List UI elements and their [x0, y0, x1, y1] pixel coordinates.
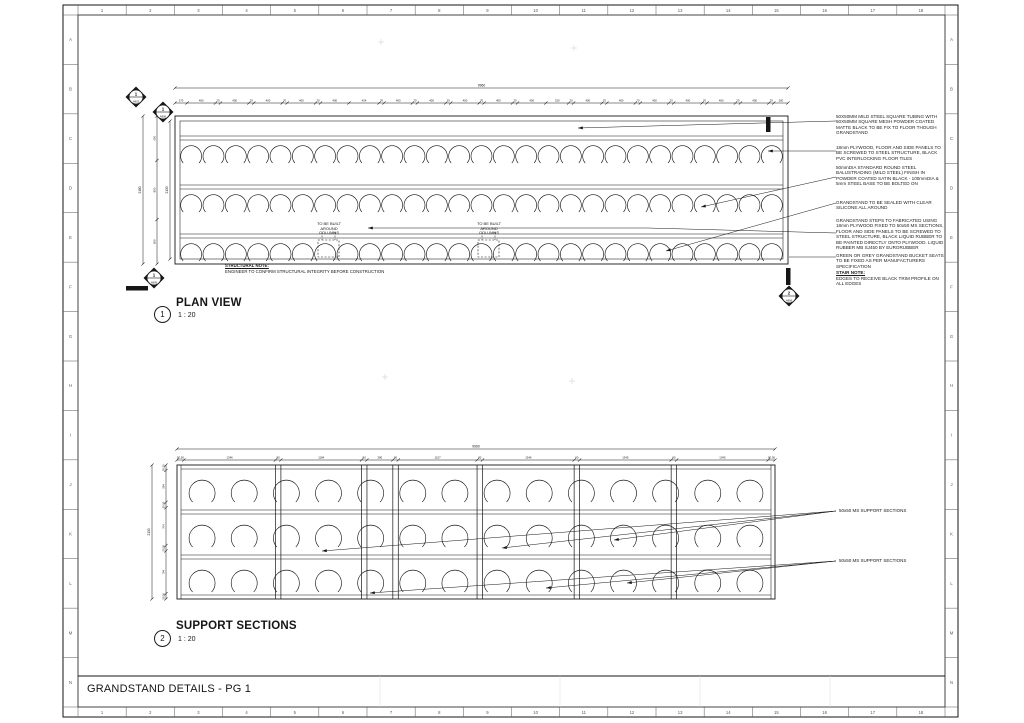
seat-arc [404, 146, 425, 163]
dim-label: 70 [250, 99, 254, 103]
dim-label: 70 [380, 99, 384, 103]
seat-arc [248, 244, 269, 261]
dim-label: 400 [496, 99, 501, 103]
grid-number: 5 [294, 710, 297, 715]
seat-arc [248, 146, 269, 163]
grid-number: 16 [822, 710, 827, 715]
plan-view-title: PLAN VIEW [176, 297, 242, 309]
seat-arc [672, 195, 693, 212]
grid-number: 6 [342, 8, 345, 13]
dim-label: 70 [770, 99, 774, 103]
dim-label: 70 [570, 99, 574, 103]
seat-arc [583, 244, 604, 261]
seat-arc [273, 525, 299, 547]
seat-arc [189, 480, 215, 502]
seat-arc [359, 244, 380, 261]
dim-label: 800 [153, 187, 157, 192]
dim-label: 70 [316, 99, 320, 103]
seat-arc [583, 146, 604, 163]
dim-label: 70 [447, 99, 451, 103]
grid-number: 3 [197, 8, 200, 13]
dim-label: 80 [672, 456, 676, 460]
sheet-border-inner [78, 15, 945, 707]
dim-label: 70 [283, 99, 287, 103]
dim-total-label: 2130 [165, 186, 169, 193]
seat-arc [449, 244, 470, 261]
dim-label: 400 [686, 99, 691, 103]
seat-arc [203, 195, 224, 212]
dim-label: 50,50 [162, 593, 166, 600]
grid-number: 5 [294, 8, 297, 13]
dim-label: 50,50 [162, 544, 166, 551]
seat-arc [695, 525, 721, 547]
seat-arc [203, 146, 224, 163]
dim-label: 424 [362, 99, 367, 103]
seat-arc [717, 244, 738, 261]
seat-arc [560, 146, 581, 163]
seat-arc [653, 480, 679, 502]
grid-number: 4 [245, 8, 248, 13]
seat-arc [605, 146, 626, 163]
support-view-scale: 1 : 20 [178, 636, 196, 643]
grid-number: 17 [870, 710, 875, 715]
seat-arc [739, 146, 760, 163]
grid-letter: D [69, 186, 72, 191]
grid-letter: G [950, 334, 953, 339]
dim-label: 80 [277, 456, 281, 460]
seat-arc [739, 195, 760, 212]
leader-line [322, 511, 836, 551]
drawing-sheet: 1122334455667788991010111112121313141415… [0, 0, 1024, 723]
dim-label: 70 [703, 99, 707, 103]
structural-note-title: STRUCTURAL NOTE: [225, 263, 269, 268]
seat-arc [181, 244, 202, 261]
grid-number: 15 [774, 710, 779, 715]
note-plywood-floor: 18mm PLYWOOD, FLOOR AND SIDE PANELS TO B… [836, 145, 944, 161]
dim-label: 400 [299, 99, 304, 103]
seat-arc [568, 480, 594, 502]
seat-arc [653, 525, 679, 547]
seat-arc [627, 195, 648, 212]
grid-letter: I [951, 433, 952, 438]
dim-label: 80 [363, 456, 367, 460]
seat-arc [382, 195, 403, 212]
seat-arc [442, 570, 468, 592]
grid-letter: J [69, 482, 71, 487]
seat-arc [650, 195, 671, 212]
dim-label: 400 [429, 99, 434, 103]
seat-arc [231, 480, 257, 502]
grid-letter: K [69, 532, 72, 537]
grid-number: 1 [101, 8, 104, 13]
grid-letter: K [950, 532, 953, 537]
dim-label: 170 [179, 99, 184, 103]
seat-arc [181, 146, 202, 163]
grid-number: 18 [919, 8, 924, 13]
dim-label: 1157 [435, 456, 441, 460]
seat-arc [526, 570, 552, 592]
seat-arc [225, 146, 246, 163]
seat-arc [493, 244, 514, 261]
seat-arc [605, 244, 626, 261]
seat-arc [761, 195, 782, 212]
seat-arc [672, 146, 693, 163]
column-note-1: TO BE BUILT AROUND COLUMNS [310, 222, 348, 236]
sheet-geometry: 1122334455667788991010111112121313141415… [0, 0, 1024, 723]
grid-letter: F [950, 284, 953, 289]
stair-note-body: EDGES TO RECEIVE BLACK TRIM PROFILE ON A… [836, 276, 944, 287]
dim-label: 1346 [227, 456, 234, 460]
arrowhead [546, 586, 551, 589]
grid-number: 15 [774, 8, 779, 13]
section-marker-ref: A906 [786, 298, 793, 302]
dim-total-label: 2180 [138, 186, 142, 193]
seat-arc [181, 195, 202, 212]
seat-arc [292, 244, 313, 261]
dim-label: 70 [480, 99, 484, 103]
seat-arc [225, 244, 246, 261]
dim-label: 600 [153, 239, 157, 244]
seat-arc [516, 244, 537, 261]
seat-arc [273, 570, 299, 592]
grid-number: 13 [678, 8, 683, 13]
grid-letter: A [950, 37, 953, 42]
seat-arc [337, 195, 358, 212]
dim-total-label: 9960 [478, 83, 486, 87]
note-mesh-tubing: 50X50MM MILD STEEL SQUARE TUBING WITH 50… [836, 114, 944, 136]
grid-number: 12 [630, 710, 635, 715]
seat-arc [471, 146, 492, 163]
seat-arc [538, 244, 559, 261]
grid-number: 2 [149, 8, 152, 13]
support-sections-label-1: 50x50 MS SUPPORT SECTIONS [839, 508, 906, 513]
plan-view-number-bubble: 1 [154, 306, 171, 323]
seat-arc [694, 146, 715, 163]
arrowhead [666, 248, 671, 251]
column-note-2: TO BE BUILT AROUND COLUMNS [470, 222, 508, 236]
dim-label: 1345 [719, 456, 726, 460]
seat-arc [650, 244, 671, 261]
arrowhead [502, 546, 507, 549]
seat-arc [493, 195, 514, 212]
dim-label: 1184 [318, 456, 324, 460]
seat-arc [449, 146, 470, 163]
seat-arc [404, 244, 425, 261]
grid-number: 11 [582, 710, 587, 715]
seat-arc [400, 570, 426, 592]
seat-arc [404, 195, 425, 212]
seat-arc [695, 480, 721, 502]
seat-arc [739, 244, 760, 261]
arrowhead [370, 591, 375, 594]
dim-label: 50,50 [162, 464, 166, 471]
arrowhead [368, 227, 373, 230]
seat-arc [273, 480, 299, 502]
support-view-title: SUPPORT SECTIONS [176, 620, 297, 632]
seat-arc [231, 525, 257, 547]
leader-line [648, 228, 836, 233]
section-cut-bar [126, 286, 148, 291]
grid-letter: N [69, 680, 72, 685]
seat-arc [471, 195, 492, 212]
dim-label: 400 [652, 99, 657, 103]
seat-arc [516, 146, 537, 163]
grid-number: 14 [726, 710, 731, 715]
seat-arc [426, 146, 447, 163]
seat-arc [583, 195, 604, 212]
seat-arc [426, 195, 447, 212]
seat-arc [650, 146, 671, 163]
dim-label: 70 [736, 99, 740, 103]
seat-arc [382, 244, 403, 261]
dim-label: 400 [199, 99, 204, 103]
seat-arc [493, 146, 514, 163]
dim-label: 70 [216, 99, 220, 103]
grid-letter: M [69, 630, 73, 635]
seat-arc [737, 480, 763, 502]
seat-arc [316, 570, 342, 592]
grid-number: 8 [438, 8, 441, 13]
seat-arc [717, 146, 738, 163]
dim-label: 70 [513, 99, 517, 103]
support-view-number-bubble: 2 [154, 630, 171, 647]
seat-arc [315, 195, 336, 212]
dim-label: 400 [332, 99, 337, 103]
grid-number: 16 [822, 8, 827, 13]
seat-arc [611, 480, 637, 502]
seat-arc [359, 195, 380, 212]
arrowhead [627, 581, 632, 584]
grid-number: 11 [582, 8, 587, 13]
grid-number: 7 [390, 710, 393, 715]
seat-arc [442, 480, 468, 502]
grid-letter: F [69, 284, 72, 289]
seat-arc [560, 195, 581, 212]
grid-number: 4 [245, 710, 248, 715]
note-balustrading: 50mmDIA STANDARD ROUND STEEL BALUSTRADIN… [836, 165, 944, 187]
dim-label: 80 [394, 456, 398, 460]
grid-number: 3 [197, 710, 200, 715]
seat-arc [189, 570, 215, 592]
dim-label: 70 [636, 99, 640, 103]
grid-letter: B [69, 87, 72, 92]
grid-letter: B [950, 87, 953, 92]
dim-total-label: 9960 [472, 444, 480, 448]
seat-arc [337, 244, 358, 261]
dim-label: 320 [555, 99, 560, 103]
leader-line [502, 511, 836, 548]
dim-label: 794 [162, 570, 166, 575]
sheet-title: GRANDSTAND DETAILS - PG 1 [87, 683, 251, 695]
arrowhead [578, 126, 583, 129]
seat-arc [400, 480, 426, 502]
grid-number: 10 [533, 710, 538, 715]
plan-view-scale: 1 : 20 [178, 312, 196, 319]
seat-arc [516, 195, 537, 212]
grid-letter: I [70, 433, 71, 438]
grid-letter: D [950, 186, 953, 191]
seat-arc [189, 525, 215, 547]
seat-arc [270, 195, 291, 212]
leader-line [701, 177, 836, 207]
seat-arc [484, 525, 510, 547]
dim-label: 400 [396, 99, 401, 103]
leader-line [578, 121, 836, 128]
grid-number: 18 [919, 710, 924, 715]
structural-note-body: ENGINEER TO CONFIRM STRUCTURAL INTEGRITY… [225, 269, 384, 274]
dim-label: 70 [603, 99, 607, 103]
dim-label: 400 [529, 99, 534, 103]
dim-label: 380 [378, 456, 383, 460]
dim-label: 600 [153, 135, 157, 140]
grid-number: 7 [390, 8, 393, 13]
seat-arc [761, 244, 782, 261]
dim-label: 400 [463, 99, 468, 103]
section-cut-bar [786, 268, 791, 285]
section-marker-ref: A906 [151, 280, 158, 284]
leader-line [370, 561, 836, 593]
note-bucket-seats: GREEN OR GREY GRANDSTAND BUCKET SEATS TO… [836, 253, 944, 269]
note-silicone-seal: GRANDSTAND TO BE SEALED WITH CLEAR SILIC… [836, 200, 944, 211]
plan-inner-outline [180, 121, 783, 259]
grid-letter: H [950, 383, 953, 388]
grid-letter: C [950, 136, 953, 141]
dim-label: 80 [478, 456, 482, 460]
grid-letter: E [69, 235, 72, 240]
dim-label: 70 [670, 99, 674, 103]
note-steps-fabrication: GRANDSTAND STEPS TO FABRICATED USING 18m… [836, 218, 944, 250]
dim-label: 1346 [525, 456, 532, 460]
grid-letter: H [69, 383, 72, 388]
dim-label: 400 [619, 99, 624, 103]
grid-letter: E [950, 235, 953, 240]
seat-arc [538, 195, 559, 212]
grid-number: 17 [870, 8, 875, 13]
seat-arc [270, 146, 291, 163]
seat-arc [337, 146, 358, 163]
seat-arc [717, 195, 738, 212]
seat-arc [737, 570, 763, 592]
dim-label: 400 [266, 99, 271, 103]
seat-arc [471, 244, 492, 261]
seat-arc [426, 244, 447, 261]
arrowhead [701, 205, 706, 208]
seat-arc [203, 244, 224, 261]
arrowhead [322, 549, 327, 552]
grid-number: 8 [438, 710, 441, 715]
seat-arc [694, 244, 715, 261]
seat-arc [292, 146, 313, 163]
seat-arc [568, 525, 594, 547]
seat-arc [449, 195, 470, 212]
seat-arc [316, 480, 342, 502]
dim-label: 1345 [622, 456, 629, 460]
seat-arc [737, 525, 763, 547]
dim-label: 400 [585, 99, 590, 103]
grid-number: 10 [533, 8, 538, 13]
dim-label: 70 [413, 99, 417, 103]
dim-label: 400 [719, 99, 724, 103]
seat-arc [605, 195, 626, 212]
seat-arc [382, 146, 403, 163]
seat-arc [526, 480, 552, 502]
seat-arc [359, 146, 380, 163]
arrowhead [614, 538, 619, 541]
leader-line [546, 561, 836, 588]
seat-arc [270, 244, 291, 261]
seat-arc [231, 570, 257, 592]
seat-arc [568, 570, 594, 592]
grid-letter: C [69, 136, 72, 141]
seat-arc [627, 244, 648, 261]
seat-arc [538, 146, 559, 163]
seat-arc [611, 570, 637, 592]
grid-number: 14 [726, 8, 731, 13]
grid-number: 9 [486, 710, 489, 715]
dim-label: 50,50 [177, 456, 184, 460]
seat-arc [316, 525, 342, 547]
dim-label: 80,50 [768, 456, 775, 460]
grid-number: 1 [101, 710, 104, 715]
seat-arc [484, 570, 510, 592]
grid-number: 12 [630, 8, 635, 13]
section-marker-ref: A902 [133, 99, 140, 103]
grid-number: 2 [149, 710, 152, 715]
grid-number: 9 [486, 8, 489, 13]
column-outline [478, 240, 499, 257]
support-sections-label-2: 50x50 MS SUPPORT SECTIONS [839, 558, 906, 563]
seat-arc [315, 146, 336, 163]
plan-outline [175, 116, 788, 264]
support-outline [177, 465, 775, 599]
seat-arc [761, 146, 782, 163]
seat-arc [627, 146, 648, 163]
seat-arc [560, 244, 581, 261]
dim-label: 200 [779, 99, 784, 103]
seat-arc [442, 525, 468, 547]
seat-arc [225, 195, 246, 212]
seat-arc [694, 195, 715, 212]
grid-letter: G [69, 334, 72, 339]
grid-letter: L [950, 581, 953, 586]
sheet-border-outer [63, 5, 958, 717]
grid-letter: A [69, 37, 72, 42]
grid-number: 6 [342, 710, 345, 715]
dim-label: 400 [752, 99, 757, 103]
dim-label: 400 [232, 99, 237, 103]
arrowhead [768, 150, 773, 153]
dim-label: 704 [162, 524, 166, 529]
dim-label: 50,50 [162, 501, 166, 508]
grid-letter: J [950, 482, 952, 487]
seat-arc [484, 480, 510, 502]
section-cut-bar [766, 117, 771, 132]
section-marker-ref: A906 [160, 114, 167, 118]
dim-total-label: 2130 [147, 528, 151, 535]
grid-letter: M [950, 630, 954, 635]
seat-arc [292, 195, 313, 212]
seat-arc [248, 195, 269, 212]
dim-label: 80 [575, 456, 579, 460]
grid-letter: L [69, 581, 72, 586]
dim-label: 594 [162, 484, 166, 489]
grid-number: 13 [678, 710, 683, 715]
grid-letter: N [950, 680, 953, 685]
